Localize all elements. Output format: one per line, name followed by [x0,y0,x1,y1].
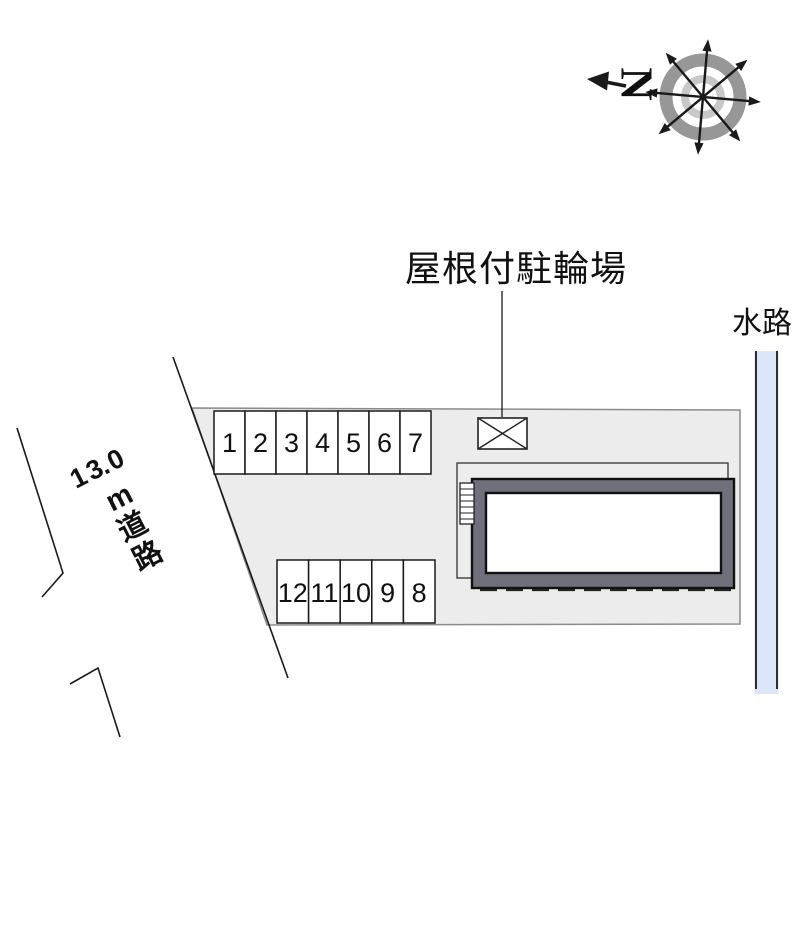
bicycle-parking-box-icon [478,418,527,449]
parking-space-number: 4 [315,428,330,458]
parking-space-number: 11 [310,578,338,608]
parking-space-number: 6 [377,428,392,458]
road-edge-line [70,668,120,737]
parking-space-number: 9 [380,578,395,608]
waterway-channel [755,351,779,694]
parking-space-number: 7 [408,428,423,458]
road-name-label: m道路 [101,478,169,577]
site-plan-figure: N 13.0 m道路 1 2 3 4 5 6 7 [0,0,800,941]
parking-space-number: 8 [412,578,427,608]
bicycle-parking-label: 屋根付駐輪場 [405,248,627,289]
stairs-icon [460,483,474,524]
parking-space-number: 3 [284,428,299,458]
parking-space-number: 10 [341,578,371,608]
waterway-label: 水路 [732,307,792,340]
parking-space-number: 5 [346,428,361,458]
site-plan-page: N 13.0 m道路 1 2 3 4 5 6 7 [0,0,800,941]
compass-rose: N [587,39,761,155]
parking-space-number: 1 [222,428,237,458]
parking-space-number: 12 [278,578,308,608]
building-inner [486,493,721,573]
road-edge-line [17,428,63,597]
parking-space-number: 2 [253,428,268,458]
